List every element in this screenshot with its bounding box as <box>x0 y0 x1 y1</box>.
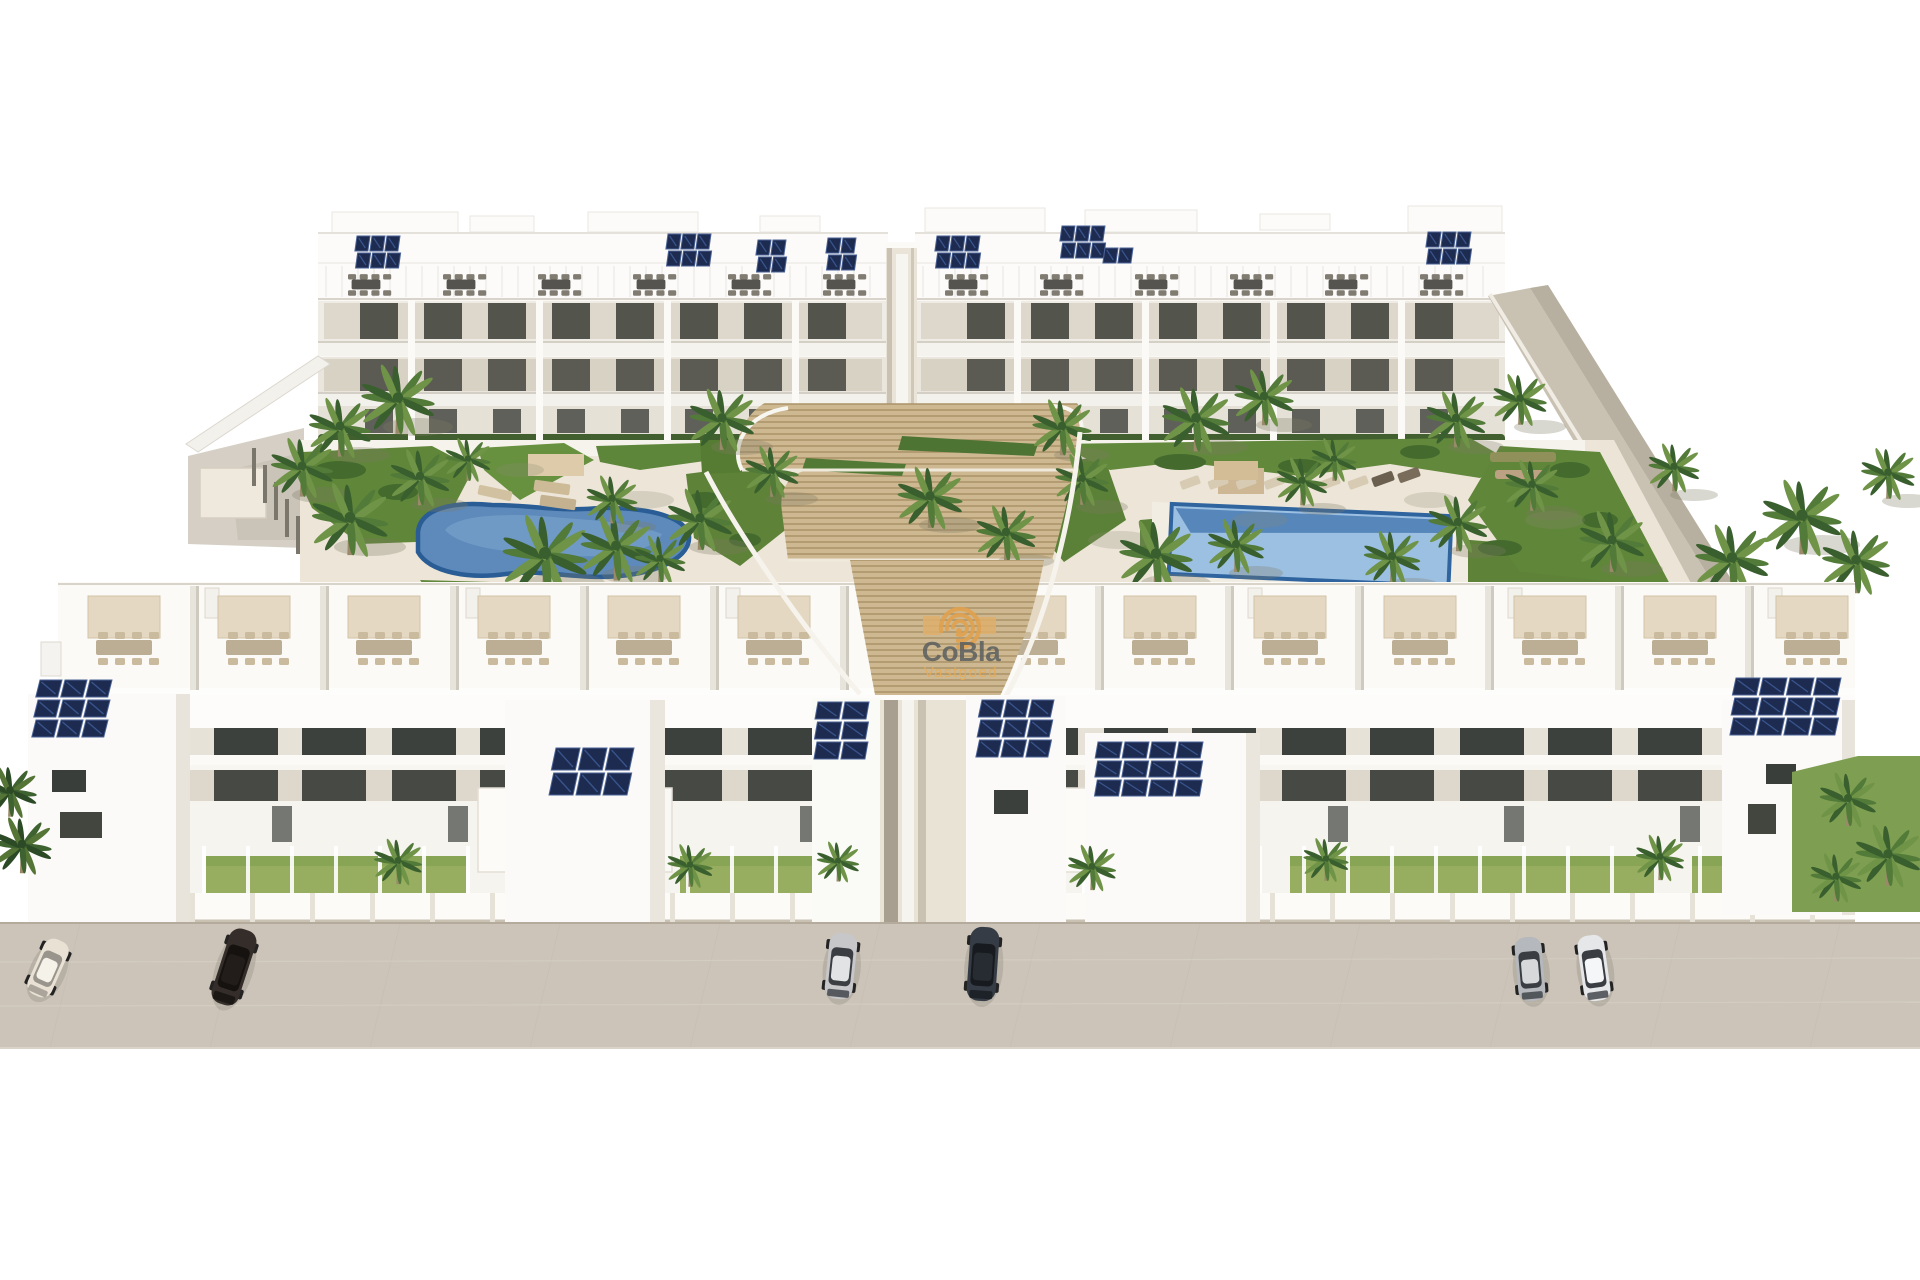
svg-text:CoBla: CoBla <box>922 636 1001 667</box>
svg-text:Vastgoed: Vastgoed <box>924 664 998 681</box>
